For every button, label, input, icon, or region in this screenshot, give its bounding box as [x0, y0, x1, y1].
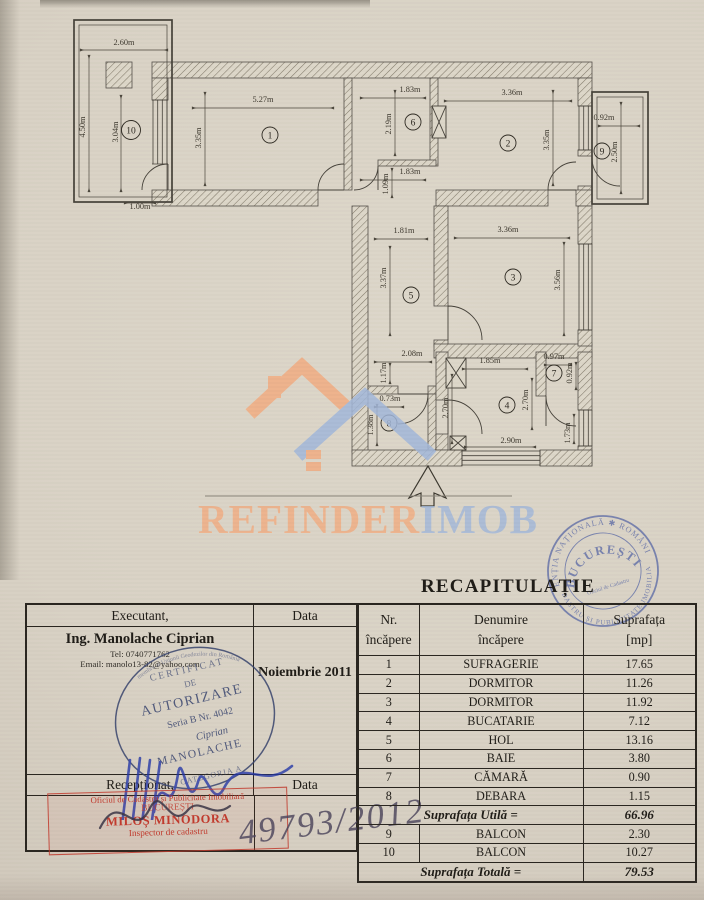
- dim-label: 5.27m: [253, 95, 275, 104]
- dim-label: 3.35m: [542, 129, 551, 151]
- logo-window: [306, 462, 321, 471]
- brand-wordmark: REFINDERIMOB: [198, 496, 538, 542]
- room-name: DEBARA: [419, 787, 583, 806]
- room-nr: 2: [358, 674, 419, 693]
- room-area: 0.90: [583, 768, 696, 787]
- dim-label: 3.37m: [379, 267, 388, 289]
- dim-label: 1.83m: [400, 167, 422, 176]
- auth-line-de: DE: [183, 677, 197, 690]
- room-area: 3.80: [583, 749, 696, 768]
- watermark-logo: REFINDERIMOB: [180, 350, 540, 550]
- room-number-label: 2: [506, 140, 511, 150]
- room-area: 1.15: [583, 787, 696, 806]
- room-number-label: 5: [409, 292, 414, 302]
- scanned-document-page: { "document": { "recap_title": "RECAPITU…: [0, 0, 704, 900]
- room-number-label: 10: [126, 127, 136, 137]
- col-header-suprafata: Suprafața[mp]: [583, 604, 696, 656]
- balcony-outlines: [74, 20, 648, 204]
- dim-label: 3.36m: [498, 225, 520, 234]
- dim-label: 3.56m: [553, 269, 562, 291]
- room-number: 1: [262, 127, 278, 143]
- table-row: 10BALCON10.27: [358, 843, 696, 862]
- room-number-label: 7: [552, 370, 557, 380]
- dim-label: 3.36m: [502, 88, 524, 97]
- suprafata-utila-row: Suprafața Utilă = 66.96: [358, 806, 696, 825]
- room-name: HOL: [419, 731, 583, 750]
- room-number: 10: [122, 121, 141, 140]
- dim-label: 0.92m: [594, 113, 616, 122]
- room-name: DORMITOR: [419, 693, 583, 712]
- room-nr: 8: [358, 787, 419, 806]
- room-area: 17.65: [583, 656, 696, 675]
- dim-label: 3.35m: [194, 127, 203, 149]
- room-name: BAIE: [419, 749, 583, 768]
- table-row: 3DORMITOR11.92: [358, 693, 696, 712]
- col-header-nr: Nr.încăpere: [358, 604, 419, 656]
- table-row: 7CĂMARĂ0.90: [358, 768, 696, 787]
- room-number-label: 3: [511, 274, 516, 284]
- room-nr: 3: [358, 693, 419, 712]
- dim-label: 1.09m: [381, 173, 390, 195]
- recap-title: RECAPITULAȚIE: [408, 576, 608, 598]
- brand-imob: IMOB: [420, 496, 538, 542]
- dim-label: 4.50m: [78, 116, 87, 138]
- col-header-denumire: Denumireîncăpere: [419, 604, 583, 656]
- room-area: 7.12: [583, 712, 696, 731]
- room-area: 13.16: [583, 731, 696, 750]
- room-nr: 10: [358, 843, 419, 862]
- room-nr: 6: [358, 749, 419, 768]
- dim-label: 1.83m: [400, 85, 422, 94]
- room-name: DORMITOR: [419, 674, 583, 693]
- room-area: 2.30: [583, 825, 696, 844]
- table-row: 4BUCATARIE7.12: [358, 712, 696, 731]
- utila-label: Suprafața Utilă =: [358, 806, 583, 825]
- room-nr: 5: [358, 731, 419, 750]
- room-number: 3: [505, 269, 521, 285]
- room-area: 11.92: [583, 693, 696, 712]
- dim-label: 0.97m: [544, 352, 566, 361]
- brand-refinder: REFINDER: [198, 496, 420, 542]
- room-name: BALCON: [419, 843, 583, 862]
- room-name: BUCATARIE: [419, 712, 583, 731]
- table-row: 6BAIE3.80: [358, 749, 696, 768]
- room-number: 2: [500, 135, 516, 151]
- dim-label: 2.60m: [114, 38, 136, 47]
- dim-label: 2.50m: [610, 141, 619, 163]
- recap-table: Nr.încăpere Denumireîncăpere Suprafața[m…: [357, 603, 697, 883]
- room-nr: 4: [358, 712, 419, 731]
- logo-roof-orange: [250, 366, 354, 414]
- room-number-label: 9: [600, 148, 605, 158]
- dim-label: 1.73m: [563, 422, 572, 444]
- logo-roof-blue: [298, 396, 432, 456]
- dim-label: 0.92m: [565, 362, 574, 384]
- dim-label: 1.81m: [394, 226, 416, 235]
- dim-label: 1.00m: [130, 202, 152, 211]
- logo-window: [306, 450, 321, 459]
- room-number: 6: [405, 114, 421, 130]
- recap-header-row: Nr.încăpere Denumireîncăpere Suprafața[m…: [358, 604, 696, 656]
- table-row: 5HOL13.16: [358, 731, 696, 750]
- dim-label: 3.04m: [111, 121, 120, 143]
- dim-label: 2.19m: [384, 113, 393, 135]
- room-name: BALCON: [419, 825, 583, 844]
- room-number: 9: [594, 143, 610, 159]
- table-row: 1SUFRAGERIE17.65: [358, 656, 696, 675]
- room-name: CĂMARĂ: [419, 768, 583, 787]
- room-number: 5: [403, 287, 419, 303]
- page-edge-shadow-top: [40, 0, 370, 8]
- utila-value: 66.96: [583, 806, 696, 825]
- page-edge-shadow-left: [0, 0, 20, 580]
- room-nr: 9: [358, 825, 419, 844]
- room-name: SUFRAGERIE: [419, 656, 583, 675]
- table-row: 2DORMITOR11.26: [358, 674, 696, 693]
- room-area: 11.26: [583, 674, 696, 693]
- room-area: 10.27: [583, 843, 696, 862]
- table-row: 8DEBARA1.15: [358, 787, 696, 806]
- room-nr: 7: [358, 768, 419, 787]
- room-number-label: 6: [411, 119, 416, 129]
- table-row: 9BALCON2.30: [358, 825, 696, 844]
- page-edge-shadow-bottom: [0, 874, 704, 900]
- room-nr: 1: [358, 656, 419, 675]
- room-number: 7: [546, 365, 562, 381]
- room-number-label: 1: [268, 132, 273, 142]
